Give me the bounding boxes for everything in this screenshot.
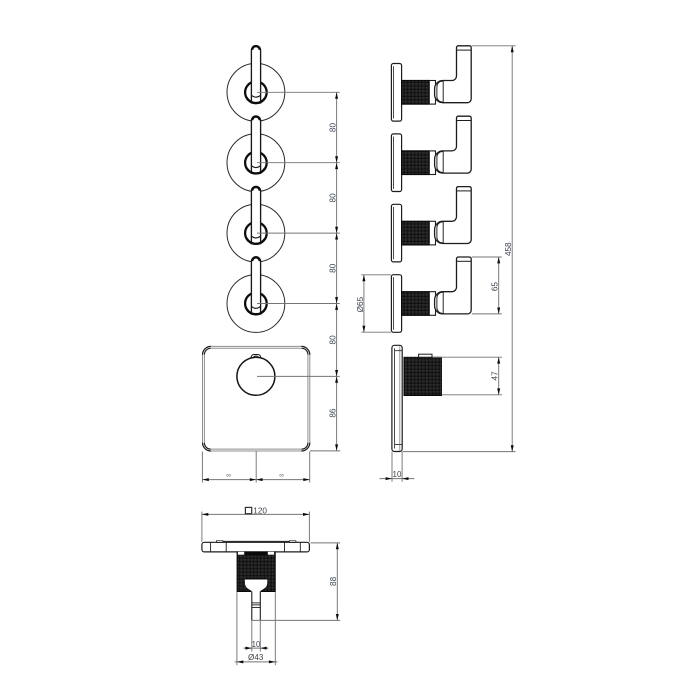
svg-text:458: 458 [504,242,513,256]
svg-text:47: 47 [491,371,500,381]
svg-text:120: 120 [253,507,267,516]
svg-text:Ø43: Ø43 [248,653,264,662]
svg-text:80: 80 [329,263,338,273]
svg-text:86: 86 [329,408,338,418]
svg-text:60: 60 [279,472,284,477]
svg-text:65: 65 [491,282,500,292]
svg-text:88: 88 [329,576,338,586]
svg-text:80: 80 [329,123,338,133]
svg-text:10: 10 [393,470,402,479]
svg-text:60: 60 [226,472,231,477]
svg-text:Ø65: Ø65 [356,296,365,312]
svg-text:10: 10 [252,640,261,649]
svg-text:80: 80 [329,193,338,203]
svg-text:80: 80 [329,335,338,345]
